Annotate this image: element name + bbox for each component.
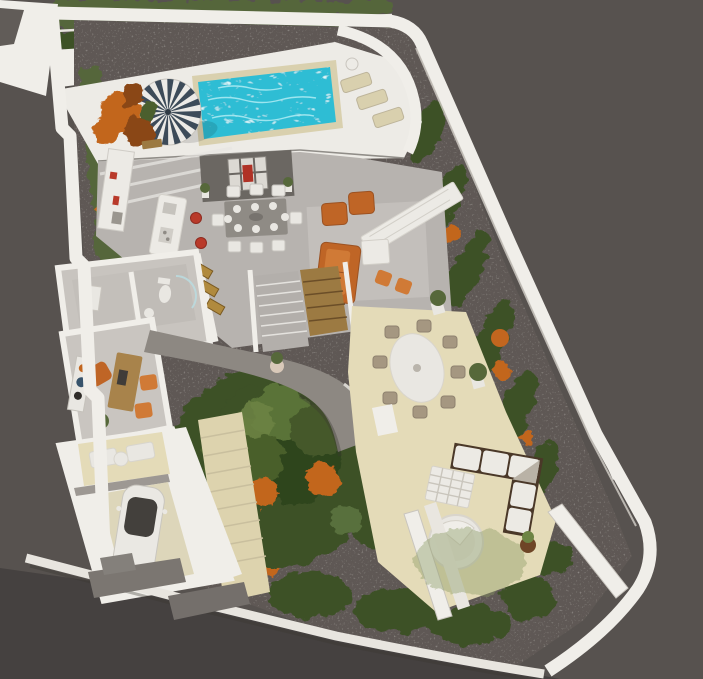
flower-cluster xyxy=(93,119,119,145)
pot-plant xyxy=(200,183,210,193)
patio-chair xyxy=(441,396,455,408)
side-table xyxy=(346,58,358,70)
island-sink xyxy=(162,202,177,215)
grass-patch xyxy=(268,571,352,619)
washbasin xyxy=(144,308,154,318)
patio-chair xyxy=(383,392,397,404)
place-setting xyxy=(252,225,260,233)
flower-bush xyxy=(519,429,535,445)
armchair xyxy=(348,191,374,215)
patio-chair xyxy=(443,336,457,348)
armchair xyxy=(321,202,347,226)
place-setting xyxy=(224,215,232,223)
counter-appliance xyxy=(109,172,117,180)
lsofa-cushion xyxy=(510,482,537,510)
flower-cluster xyxy=(122,84,144,106)
dining-chair xyxy=(272,240,285,251)
flower-bush xyxy=(490,360,510,380)
patio-chair xyxy=(451,366,465,378)
counter-sink xyxy=(111,211,123,224)
dining-chair xyxy=(290,212,302,224)
place-setting xyxy=(269,202,277,210)
light-bush xyxy=(330,504,362,536)
pot-shrub xyxy=(522,531,534,543)
feathery-plant xyxy=(415,528,525,596)
patio-chair xyxy=(385,326,399,338)
lsofa-cushion xyxy=(480,450,509,476)
dining-chair xyxy=(212,214,224,226)
art-red-block xyxy=(242,165,253,183)
guest-chair xyxy=(134,402,153,419)
dining-chair xyxy=(250,242,263,253)
bar-stool xyxy=(191,213,202,224)
car-roof-glass xyxy=(123,496,159,538)
dining-chair xyxy=(227,186,240,197)
counter-appliance xyxy=(112,196,119,206)
place-setting xyxy=(251,203,259,211)
table-center xyxy=(413,364,421,372)
coffee-table xyxy=(361,239,390,265)
place-setting xyxy=(270,223,278,231)
patio-chair xyxy=(373,356,387,368)
bar-stool xyxy=(196,238,207,249)
walkway-plant xyxy=(271,352,283,364)
place-setting xyxy=(281,213,289,221)
planter-plant xyxy=(430,290,446,306)
lsofa-cushion xyxy=(505,507,532,534)
dining-chair xyxy=(228,241,241,252)
centerpiece xyxy=(249,213,263,221)
leaf-cluster xyxy=(140,104,156,120)
small-round-table xyxy=(114,452,128,466)
scene-canvas xyxy=(0,0,703,679)
lsofa-cushion xyxy=(452,445,481,471)
dining-chair xyxy=(250,184,263,195)
planter-plant xyxy=(469,363,487,381)
place-setting xyxy=(234,224,242,232)
floor-plan-render xyxy=(0,0,703,679)
flower-bush xyxy=(305,463,339,497)
patio-chair xyxy=(417,320,431,332)
planter-flowers xyxy=(491,329,509,347)
dining-chair xyxy=(272,185,285,196)
island-cooktop xyxy=(158,227,173,244)
guest-chair xyxy=(139,374,158,391)
place-setting xyxy=(233,205,241,213)
umbrella-pole xyxy=(165,109,171,115)
patio-chair xyxy=(413,406,427,418)
